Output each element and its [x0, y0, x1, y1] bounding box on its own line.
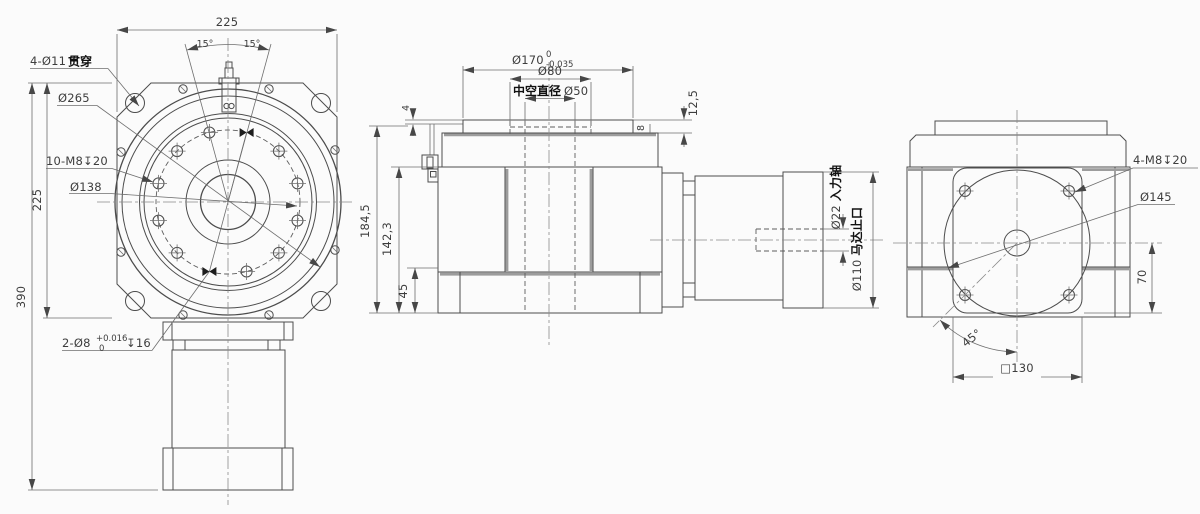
flange-tolerance-upper: 0 [546, 50, 551, 60]
dim-plate-height: 225 [30, 189, 44, 212]
dim-overall-height: 184,5 [358, 204, 372, 238]
dim-body-height: 142,3 [380, 222, 394, 256]
dim-flange-thickness: 8 [636, 125, 647, 131]
dim-square-size: □130 [1000, 361, 1034, 375]
dowel-tolerance-upper: +0.016 [96, 334, 127, 344]
label-dowel-depth: ↧16 [126, 336, 151, 350]
label-motor-pilot: Ø110 马达止口 [849, 207, 864, 291]
label-tapped-holes: 4-M8↧20 [1133, 153, 1187, 167]
label-bolt-circle: Ø145 [1140, 190, 1172, 204]
dim-top-gap: 4 [401, 105, 412, 111]
label-corner-holes: 4-Ø11 [30, 54, 66, 68]
dim-angle-left: 15° [197, 39, 214, 50]
label-outer-diameter: Ø265 [58, 91, 90, 105]
dim-flange-protrusion: 12,5 [686, 90, 700, 116]
label-input-shaft: Ø22 入力轴 [828, 165, 843, 230]
dim-angle-right: 15° [244, 39, 261, 50]
label-hollow-bore-cn: 中空直径 [513, 83, 561, 98]
dim-base-height: 45 [396, 283, 410, 298]
label-hollow-bore-dia: Ø50 [564, 84, 588, 98]
dim-plate-width: 225 [216, 15, 239, 29]
dim-pilot-diameter: Ø80 [538, 64, 562, 78]
label-tapped-holes: 10-M8↧20 [46, 154, 108, 168]
dowel-tolerance-lower: 0 [99, 344, 104, 354]
label-dowel-holes: 2-Ø8 [62, 336, 91, 350]
dim-center-to-base: 70 [1135, 269, 1149, 284]
drawing-sheet: 225 15° 15° 4-Ø11 贯穿 Ø265 10-M8↧20 Ø138 … [0, 0, 1200, 514]
label-corner-holes-cn: 贯穿 [68, 54, 92, 69]
label-bolt-circle: Ø138 [70, 180, 102, 194]
dim-total-height: 390 [14, 286, 28, 309]
engineering-drawing: 225 15° 15° 4-Ø11 贯穿 Ø265 10-M8↧20 Ø138 … [0, 0, 1200, 514]
